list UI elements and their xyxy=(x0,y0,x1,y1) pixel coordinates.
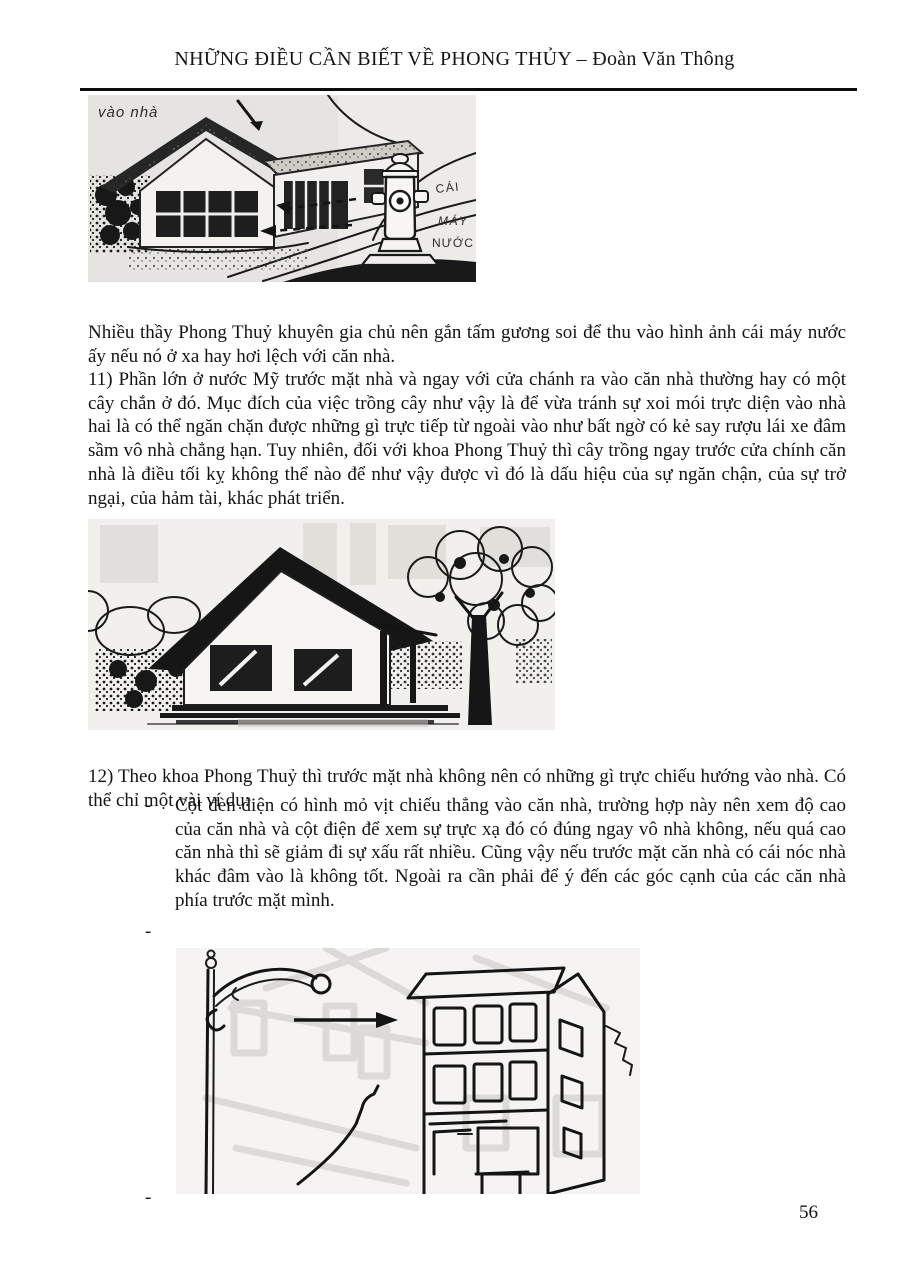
figure-lamp-building xyxy=(176,948,640,1194)
book-page: NHỮNG ĐIỀU CẦN BIẾT VỀ PHONG THỦY – Đoàn… xyxy=(0,0,909,1286)
bullet-text: Cột đèn điện có hình mỏ vịt chiếu thẳng … xyxy=(175,794,846,913)
paragraph-11-tree-blocking: 11) Phần lớn ở nước Mỹ trước mặt nhà và … xyxy=(88,368,846,510)
figure-house-hydrant: vào nhà CÁI MÁY NƯỚC xyxy=(88,95,476,282)
bullet-dash-marker: - xyxy=(145,794,175,818)
figure1-label-may: MÁY xyxy=(438,213,469,228)
page-number: 56 xyxy=(88,1202,818,1224)
figure1-label-vao-nha: vào nhà xyxy=(98,104,158,121)
figure1-label-nuoc: NƯỚC xyxy=(432,235,474,250)
bottom-smudge xyxy=(238,719,428,727)
empty-bullet-dash-1: - xyxy=(145,920,151,944)
bullet-item-lamp-post: - Cột đèn điện có hình mỏ vịt chiếu thẳn… xyxy=(88,794,846,913)
paragraph-mirror-advice: Nhiều thầy Phong Thuỷ khuyên gia chủ nên… xyxy=(88,321,846,368)
porch-post-1 xyxy=(380,631,387,705)
header-divider xyxy=(80,88,857,91)
right-hedge-speckle xyxy=(390,641,462,689)
figure-house-tree xyxy=(88,519,555,730)
figure1-label-cai: CÁI xyxy=(435,179,461,196)
page-title: NHỮNG ĐIỀU CẦN BIẾT VỀ PHONG THỦY – Đoàn… xyxy=(0,48,909,71)
